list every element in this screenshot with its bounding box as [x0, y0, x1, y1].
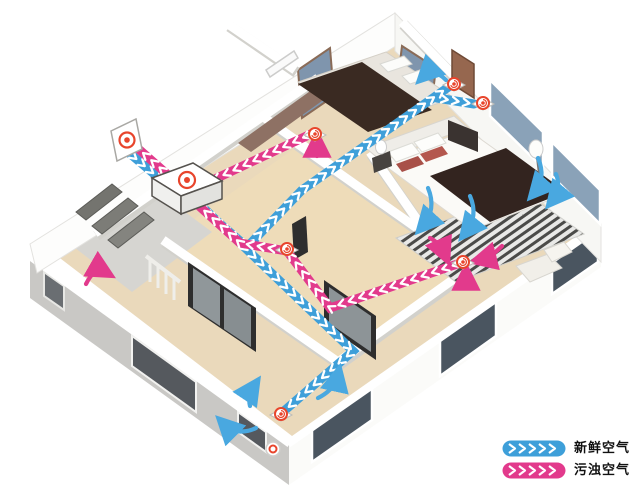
polluted-air-duct-icon	[502, 462, 566, 479]
legend-label-fresh-air: 新鲜空气	[574, 440, 630, 457]
ventilation-diagram: 新鲜空气 污浊空气	[0, 0, 640, 485]
legend: 新鲜空气 污浊空气	[502, 440, 630, 479]
legend-item-polluted-air: 污浊空气	[502, 462, 630, 479]
legend-label-polluted-air: 污浊空气	[574, 462, 630, 479]
legend-item-fresh-air: 新鲜空气	[502, 440, 630, 457]
fresh-air-duct-icon	[502, 440, 566, 457]
floorplan-illustration	[0, 0, 640, 485]
exterior-outlet-icon	[266, 442, 280, 456]
